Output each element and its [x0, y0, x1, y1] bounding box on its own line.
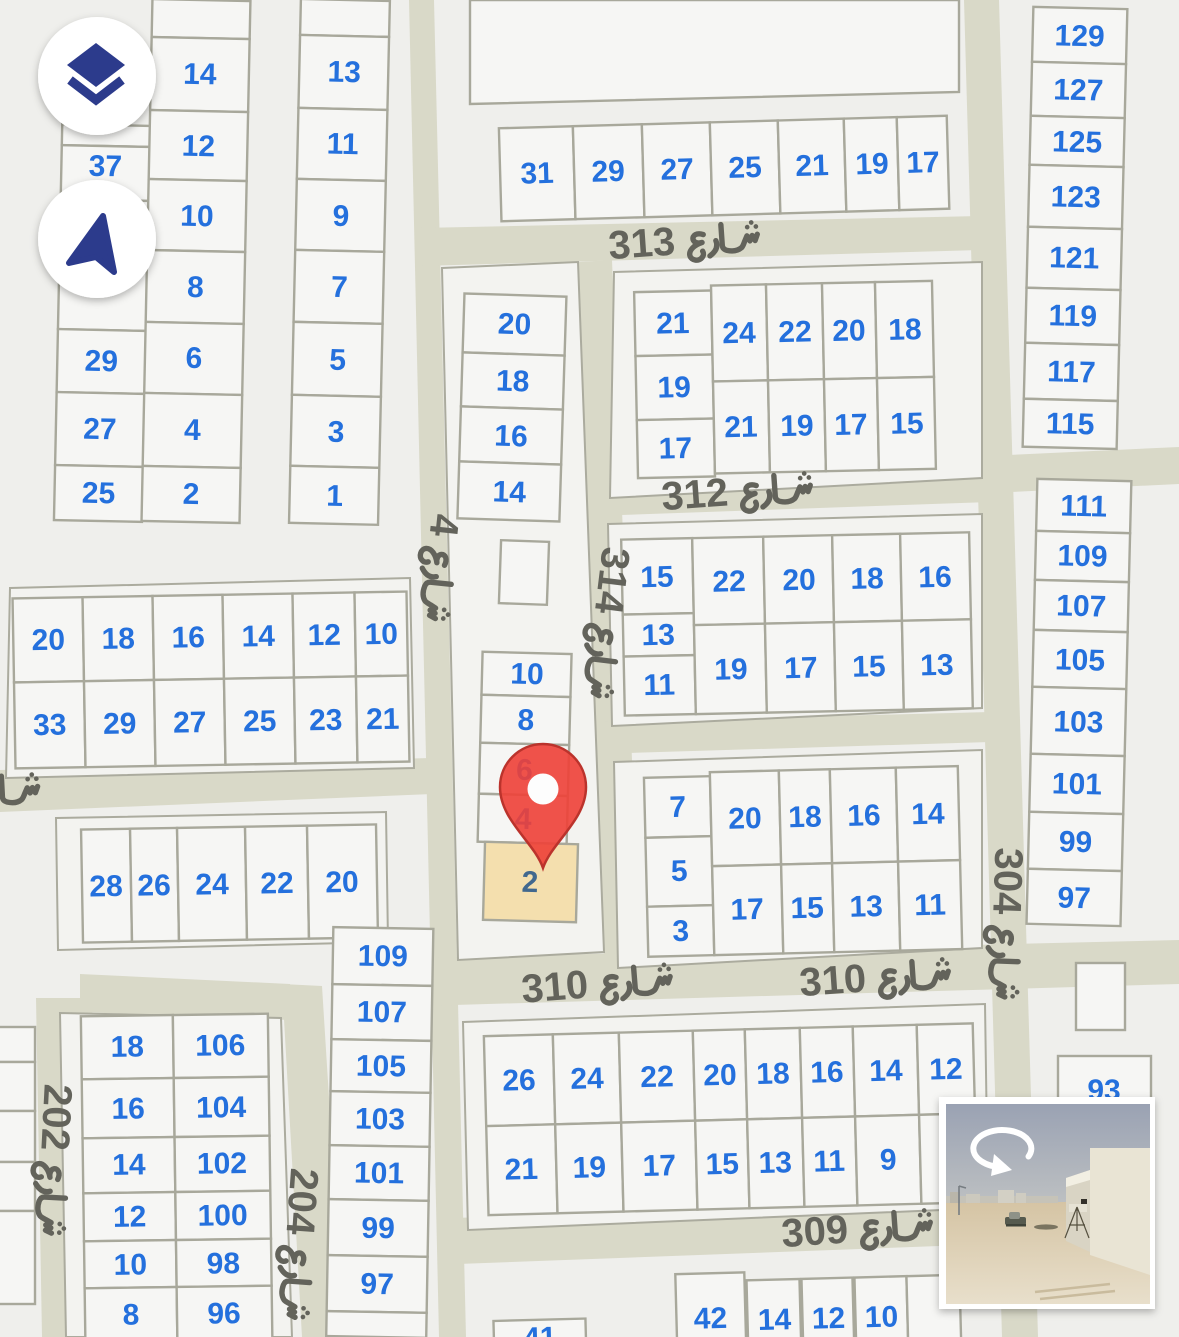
- svg-text:99: 99: [1058, 826, 1092, 860]
- svg-text:96: 96: [207, 1297, 241, 1330]
- svg-text:103: 103: [1053, 705, 1104, 739]
- svg-text:20: 20: [782, 564, 816, 598]
- svg-text:18: 18: [756, 1057, 790, 1091]
- svg-text:18: 18: [110, 1030, 144, 1063]
- svg-text:13: 13: [758, 1146, 792, 1180]
- svg-text:204: 204: [277, 1167, 326, 1237]
- svg-text:20: 20: [325, 866, 359, 900]
- svg-text:13: 13: [641, 619, 675, 653]
- svg-text:106: 106: [195, 1029, 246, 1063]
- svg-text:37: 37: [88, 150, 122, 184]
- svg-text:18: 18: [850, 562, 884, 596]
- svg-text:9: 9: [332, 200, 349, 233]
- svg-text:123: 123: [1050, 180, 1101, 214]
- svg-text:100: 100: [197, 1199, 248, 1233]
- svg-text:25: 25: [243, 705, 277, 739]
- svg-text:16: 16: [918, 561, 952, 595]
- svg-text:10: 10: [364, 618, 398, 652]
- svg-text:22: 22: [260, 867, 294, 901]
- svg-text:129: 129: [1054, 19, 1105, 53]
- svg-text:20: 20: [703, 1059, 737, 1093]
- svg-text:27: 27: [83, 413, 117, 447]
- svg-text:16: 16: [171, 621, 205, 655]
- svg-text:14: 14: [869, 1054, 904, 1088]
- svg-text:8: 8: [517, 704, 535, 737]
- svg-text:19: 19: [855, 147, 889, 181]
- svg-text:6: 6: [185, 342, 202, 375]
- svg-text:10: 10: [180, 200, 214, 234]
- svg-text:3: 3: [672, 915, 689, 948]
- svg-text:2: 2: [521, 866, 539, 899]
- svg-text:26: 26: [137, 869, 171, 903]
- svg-text:26: 26: [502, 1064, 536, 1098]
- svg-text:312: 312: [660, 471, 730, 520]
- svg-text:33: 33: [33, 709, 67, 743]
- svg-text:19: 19: [572, 1151, 606, 1185]
- svg-text:11: 11: [914, 888, 947, 922]
- svg-text:19: 19: [657, 371, 691, 405]
- svg-text:19: 19: [714, 653, 748, 687]
- svg-text:14: 14: [112, 1148, 146, 1181]
- svg-text:304: 304: [984, 847, 1030, 916]
- svg-text:105: 105: [1055, 643, 1106, 677]
- svg-text:97: 97: [1057, 882, 1091, 916]
- svg-text:21: 21: [504, 1153, 538, 1187]
- svg-text:42: 42: [693, 1302, 727, 1336]
- svg-text:25: 25: [81, 477, 115, 511]
- svg-text:5: 5: [329, 344, 346, 377]
- svg-text:23: 23: [309, 704, 343, 738]
- svg-text:21: 21: [795, 149, 829, 183]
- svg-text:13: 13: [327, 56, 361, 90]
- svg-text:105: 105: [356, 1050, 407, 1084]
- svg-text:101: 101: [354, 1157, 405, 1191]
- svg-text:7: 7: [669, 791, 686, 824]
- svg-text:10: 10: [510, 658, 544, 692]
- svg-text:125: 125: [1052, 125, 1103, 159]
- svg-text:8: 8: [187, 271, 204, 304]
- svg-text:25: 25: [728, 151, 762, 185]
- svg-text:16: 16: [847, 799, 881, 833]
- svg-text:8: 8: [122, 1299, 139, 1332]
- svg-text:12: 12: [113, 1200, 147, 1233]
- svg-text:109: 109: [358, 940, 409, 974]
- svg-text:107: 107: [1056, 589, 1107, 623]
- svg-text:99: 99: [361, 1212, 395, 1246]
- svg-text:18: 18: [788, 800, 822, 834]
- svg-text:202: 202: [32, 1083, 79, 1152]
- svg-text:17: 17: [642, 1149, 676, 1183]
- svg-text:98: 98: [206, 1247, 240, 1280]
- svg-text:16: 16: [111, 1092, 145, 1125]
- svg-text:22: 22: [640, 1060, 674, 1094]
- svg-text:16: 16: [810, 1056, 844, 1090]
- svg-text:24: 24: [570, 1062, 605, 1096]
- svg-text:18: 18: [496, 364, 530, 398]
- svg-text:22: 22: [778, 315, 812, 349]
- svg-text:13: 13: [849, 890, 883, 924]
- svg-text:20: 20: [497, 308, 531, 342]
- svg-text:310: 310: [798, 957, 868, 1006]
- svg-text:18: 18: [888, 313, 922, 347]
- svg-text:28: 28: [89, 870, 123, 904]
- svg-text:11: 11: [643, 669, 675, 703]
- svg-text:17: 17: [906, 146, 940, 180]
- svg-text:3: 3: [327, 416, 344, 449]
- svg-text:20: 20: [31, 624, 65, 658]
- svg-text:119: 119: [1048, 299, 1097, 333]
- svg-text:15: 15: [640, 561, 674, 595]
- svg-text:12: 12: [811, 1302, 845, 1336]
- svg-text:17: 17: [784, 652, 818, 686]
- svg-text:121: 121: [1049, 241, 1100, 275]
- svg-text:27: 27: [173, 706, 207, 740]
- svg-text:14: 14: [183, 58, 217, 92]
- svg-text:11: 11: [813, 1145, 846, 1179]
- svg-text:314: 314: [586, 545, 638, 617]
- svg-text:104: 104: [196, 1091, 247, 1125]
- svg-text:24: 24: [195, 868, 229, 902]
- svg-text:4: 4: [184, 414, 202, 447]
- svg-text:10: 10: [113, 1248, 147, 1281]
- svg-text:7: 7: [331, 271, 348, 304]
- svg-text:21: 21: [656, 307, 690, 341]
- svg-text:107: 107: [357, 996, 408, 1030]
- svg-text:310: 310: [520, 963, 590, 1012]
- svg-text:309: 309: [780, 1208, 850, 1257]
- svg-text:13: 13: [920, 649, 954, 683]
- svg-text:103: 103: [355, 1103, 406, 1137]
- svg-text:15: 15: [890, 407, 924, 441]
- svg-text:14: 14: [911, 797, 945, 831]
- svg-text:109: 109: [1057, 539, 1108, 573]
- svg-text:1: 1: [326, 480, 343, 513]
- svg-text:31: 31: [520, 157, 554, 191]
- svg-text:10: 10: [864, 1300, 898, 1334]
- svg-text:12: 12: [307, 619, 341, 653]
- svg-text:2: 2: [182, 478, 199, 511]
- svg-text:15: 15: [852, 650, 886, 684]
- svg-text:14: 14: [492, 475, 527, 509]
- svg-text:102: 102: [197, 1147, 248, 1181]
- svg-text:18: 18: [101, 622, 135, 656]
- svg-text:97: 97: [360, 1268, 394, 1302]
- svg-text:29: 29: [103, 707, 137, 741]
- svg-text:24: 24: [722, 317, 756, 351]
- svg-text:5: 5: [670, 855, 687, 888]
- svg-text:27: 27: [660, 153, 694, 187]
- svg-text:17: 17: [730, 893, 764, 927]
- svg-text:41: 41: [523, 1321, 557, 1337]
- svg-text:101: 101: [1052, 767, 1103, 801]
- svg-text:127: 127: [1053, 73, 1104, 107]
- svg-text:14: 14: [757, 1303, 792, 1337]
- svg-text:21: 21: [366, 703, 400, 737]
- svg-text:29: 29: [591, 155, 625, 189]
- svg-text:313: 313: [607, 220, 677, 269]
- svg-text:20: 20: [728, 802, 762, 836]
- svg-text:111: 111: [1060, 489, 1108, 523]
- svg-text:15: 15: [705, 1148, 739, 1182]
- svg-text:14: 14: [241, 620, 275, 654]
- svg-text:12: 12: [181, 130, 215, 164]
- svg-text:117: 117: [1047, 355, 1096, 389]
- svg-text:17: 17: [834, 408, 868, 442]
- svg-text:22: 22: [712, 565, 746, 599]
- svg-text:17: 17: [658, 432, 692, 466]
- svg-text:16: 16: [494, 419, 528, 453]
- svg-text:21: 21: [724, 411, 758, 445]
- svg-text:20: 20: [832, 314, 866, 348]
- svg-text:9: 9: [879, 1143, 897, 1176]
- svg-text:11: 11: [326, 128, 358, 162]
- svg-text:115: 115: [1046, 407, 1095, 441]
- svg-text:29: 29: [84, 345, 118, 379]
- svg-text:19: 19: [780, 409, 814, 443]
- svg-text:15: 15: [790, 891, 824, 925]
- svg-text:12: 12: [929, 1053, 963, 1087]
